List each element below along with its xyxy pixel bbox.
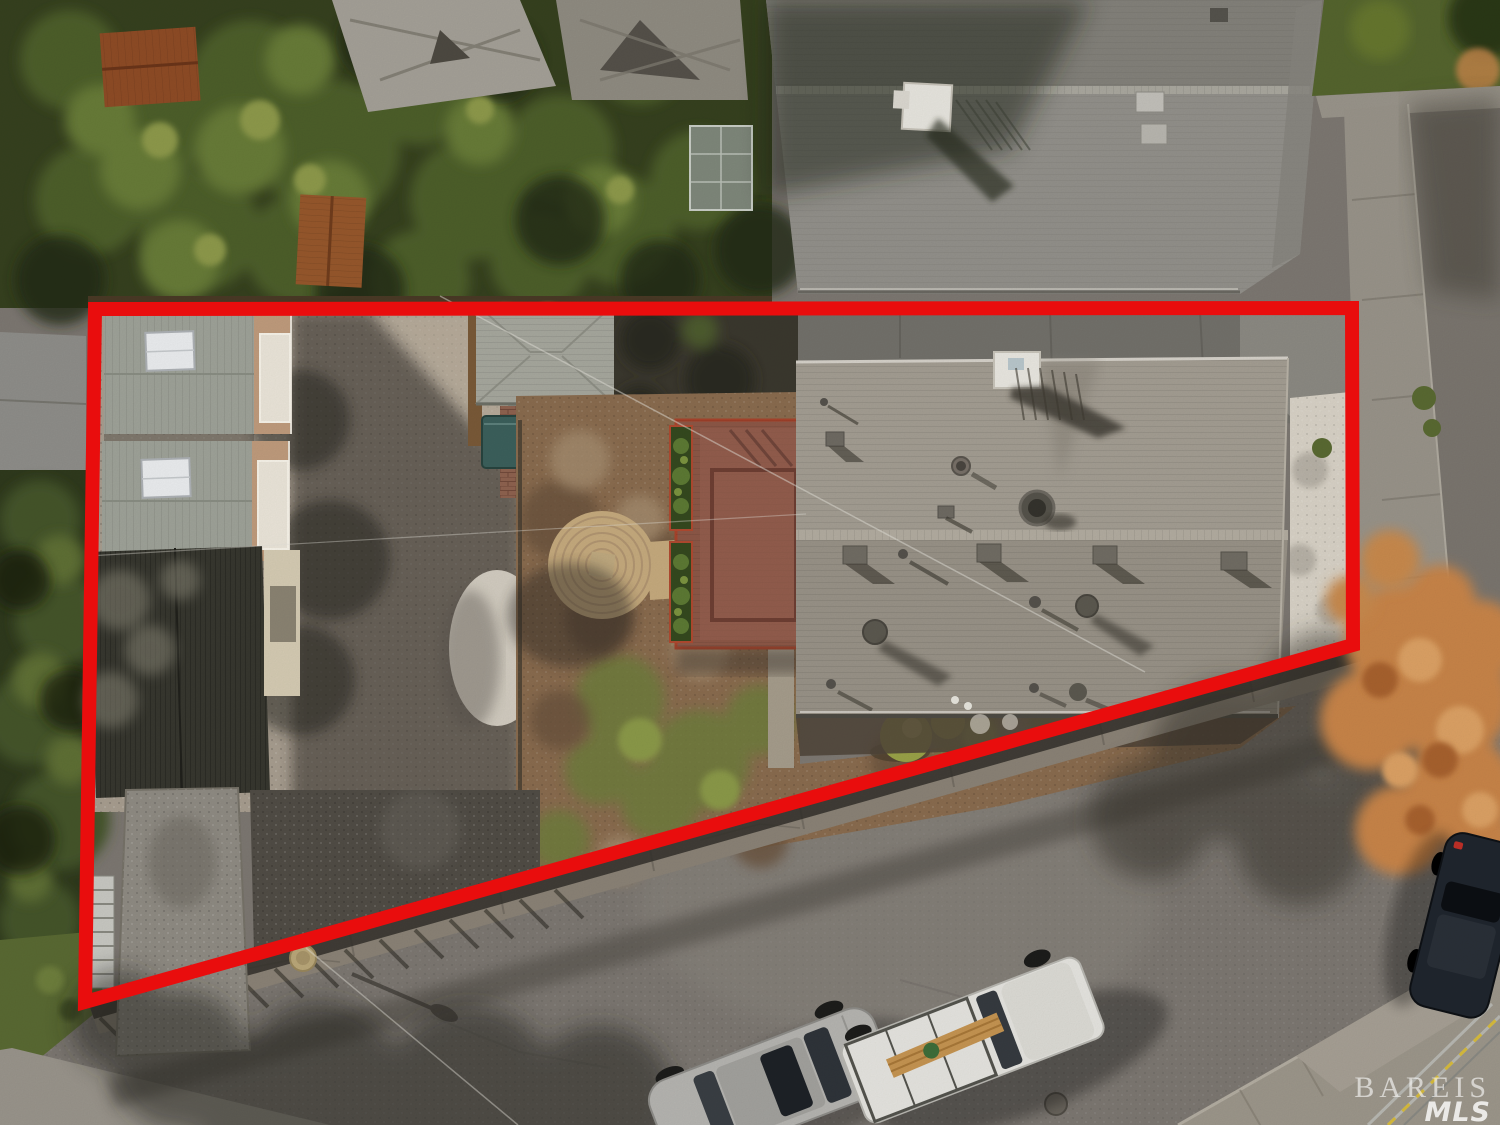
aerial-photo: BAREIS MLS (0, 0, 1500, 1125)
watermark-suffix: MLS (1424, 1097, 1491, 1125)
